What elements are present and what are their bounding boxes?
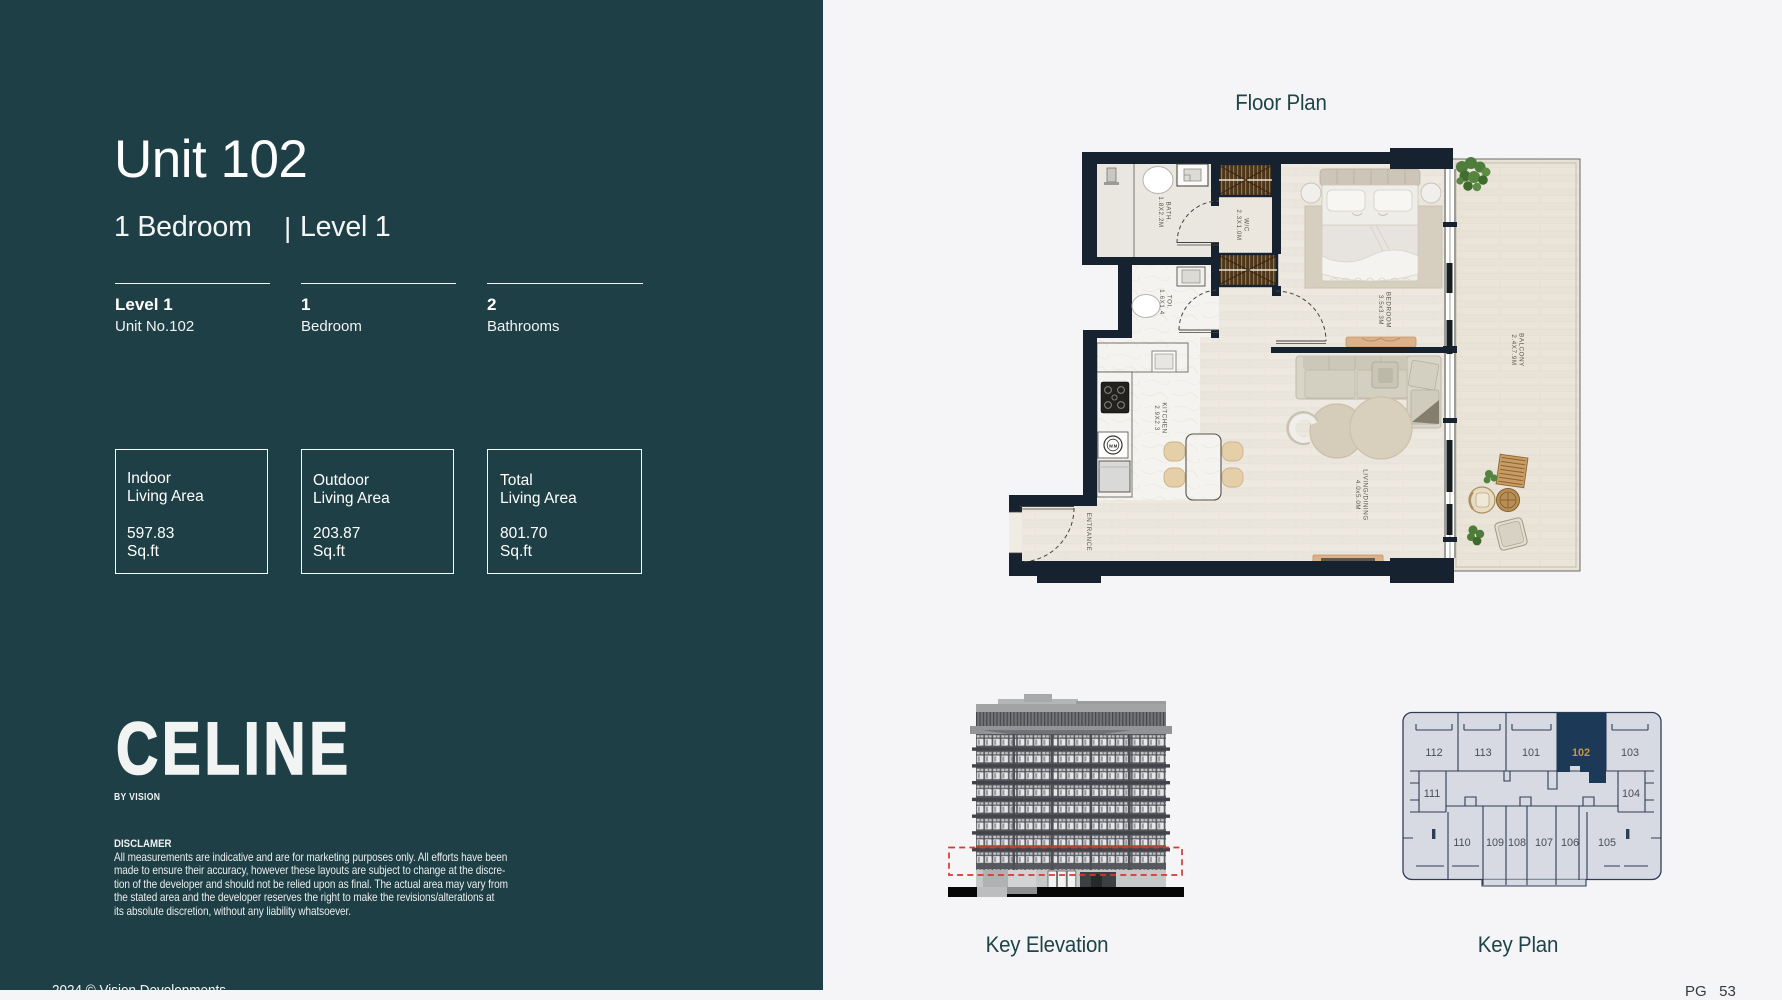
svg-text:2.3X1.0M: 2.3X1.0M (1235, 209, 1242, 240)
svg-text:KITCHEN: KITCHEN (1161, 402, 1168, 433)
svg-text:109: 109 (1486, 837, 1504, 849)
svg-text:1.8X2.2M: 1.8X2.2M (1157, 196, 1164, 227)
svg-text:102: 102 (1572, 747, 1590, 759)
svg-text:LIVING/DINING: LIVING/DINING (1362, 469, 1369, 520)
svg-text:103: 103 (1621, 747, 1639, 759)
svg-text:108: 108 (1508, 837, 1526, 849)
svg-text:2.9X2.3: 2.9X2.3 (1153, 405, 1160, 431)
svg-text:107: 107 (1535, 837, 1553, 849)
svg-text:106: 106 (1561, 837, 1579, 849)
svg-text:W.M: W.M (1109, 443, 1118, 448)
svg-text:1.6X1.4: 1.6X1.4 (1158, 289, 1165, 315)
svg-text:BATH.: BATH. (1165, 202, 1172, 223)
svg-text:2.4X7.9M: 2.4X7.9M (1510, 334, 1517, 365)
svg-text:BEDROOM: BEDROOM (1385, 292, 1392, 328)
svg-text:105: 105 (1598, 837, 1616, 849)
svg-text:104: 104 (1622, 788, 1640, 800)
svg-text:113: 113 (1474, 747, 1491, 759)
svg-text:110: 110 (1453, 837, 1470, 849)
svg-text:3.5x3.3M: 3.5x3.3M (1377, 295, 1384, 325)
svg-text:111: 111 (1424, 788, 1440, 800)
svg-text:4.0x5.0M: 4.0x5.0M (1354, 480, 1361, 510)
svg-text:ENTRANCE: ENTRANCE (1085, 513, 1092, 552)
svg-text:112: 112 (1425, 747, 1442, 759)
svg-text:TOI.: TOI. (1166, 295, 1173, 309)
svg-text:101: 101 (1522, 747, 1540, 759)
svg-text:BALCONY: BALCONY (1518, 333, 1525, 367)
svg-text:W/C: W/C (1243, 218, 1250, 232)
